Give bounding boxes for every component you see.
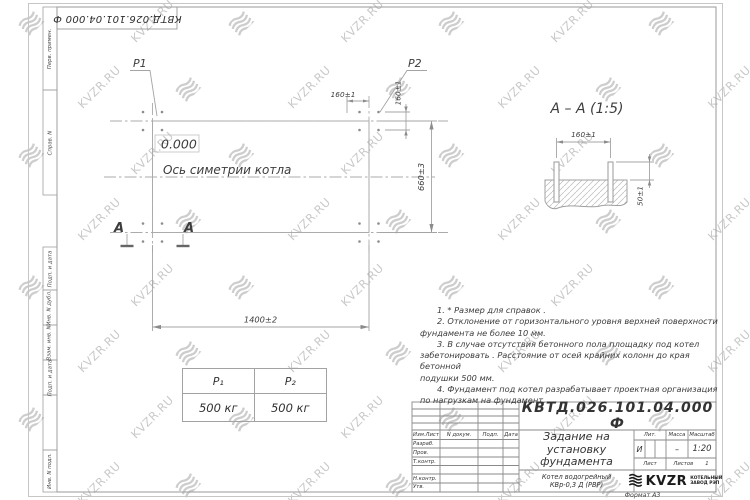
section-cut-marks <box>121 234 190 246</box>
section-dim-160-label: 160±1 <box>571 130 596 139</box>
top-stamp-box <box>57 7 177 29</box>
dim-160v-label: 160±1 <box>394 81 403 106</box>
section-dim-50-label: 50±1 <box>636 186 645 206</box>
load-leaders <box>130 71 427 117</box>
sheet-frame <box>29 4 723 497</box>
p2-label: P2 <box>408 57 422 70</box>
section-letter-right: А <box>183 221 194 236</box>
dim-160h-label: 160±1 <box>331 90 356 99</box>
anchor-bolt-left <box>554 162 559 202</box>
dim-1400-label: 1400±2 <box>244 315 277 325</box>
drawing-sheet: KVZR.RUKVZR.RUKVZR.RUKVZR.RUKVZR.RUKVZR.… <box>0 0 750 500</box>
drawing-canvas: P1 P2 0.000 Ось симетрии котла А А 1400±… <box>0 0 750 500</box>
anchor-bolt-right <box>608 162 613 202</box>
section-title: А – А (1:5) <box>550 101 624 117</box>
section-dimension-160 <box>557 138 611 158</box>
section-letter-left: А <box>113 221 124 236</box>
plan-view <box>104 71 448 332</box>
p1-label: P1 <box>133 57 147 70</box>
elevation-mark: 0.000 <box>161 137 197 152</box>
dimension-160-vertical <box>385 104 410 139</box>
dim-660-label: 660±3 <box>416 163 426 191</box>
dimension-160-horizontal <box>347 97 369 113</box>
title-block-grid <box>412 402 716 492</box>
symmetry-axis-label: Ось симетрии котла <box>163 163 291 177</box>
